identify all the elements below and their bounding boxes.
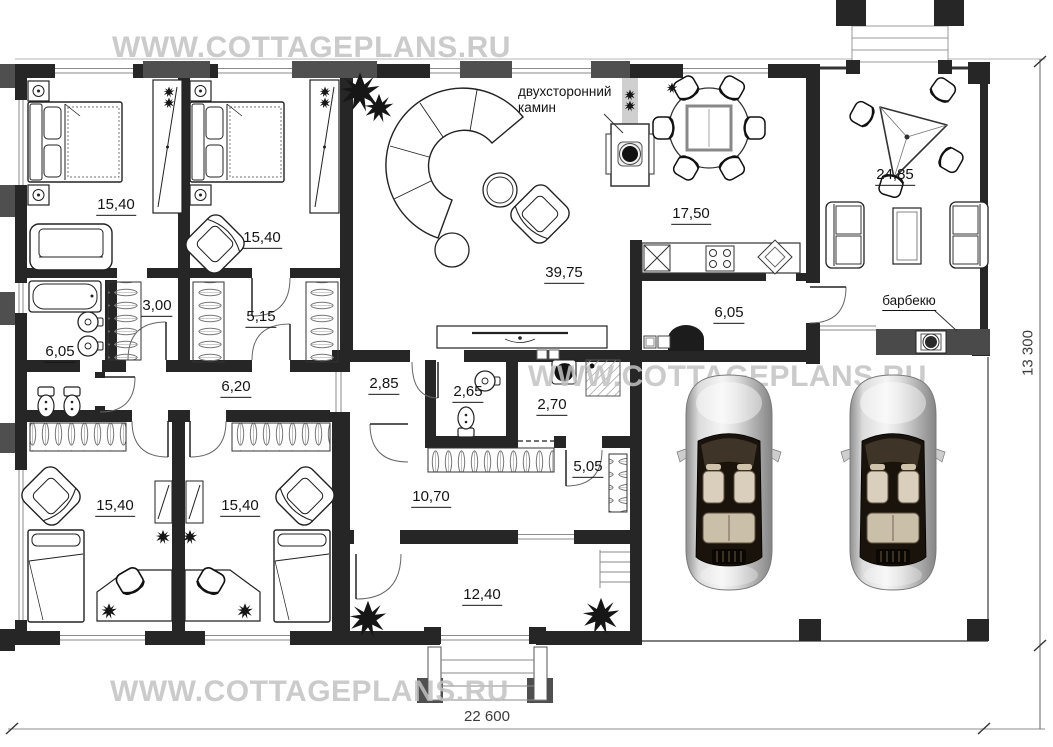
- floorplan-drawing: WWW.COTTAGEPLANS.RU WWW.COTTAGEPLANS.RU …: [0, 0, 1053, 747]
- barbecue: [876, 329, 990, 355]
- dining-set: [653, 74, 765, 182]
- terrace-furniture: [826, 75, 988, 268]
- tv-console: [437, 326, 607, 348]
- wc-fixtures: [458, 371, 500, 437]
- bedroom2-furniture: [182, 80, 339, 277]
- car-2: [841, 375, 945, 590]
- car-1: [677, 375, 781, 590]
- kitchen-counter: [642, 240, 800, 274]
- mudroom-fixtures: [644, 325, 704, 351]
- bathtub: [29, 281, 101, 312]
- terrace-sofa-left: [826, 202, 864, 268]
- pergola: [820, 0, 990, 84]
- coffee-table: [893, 208, 921, 264]
- sofa: [30, 224, 112, 270]
- kids2-furniture: [185, 423, 338, 622]
- watermark-top: WWW.COTTAGEPLANS.RU: [112, 31, 511, 64]
- carport-posts: [799, 619, 989, 641]
- living-furniture: [386, 88, 607, 348]
- terrace-sofa-right: [950, 202, 988, 268]
- watermark-bottom: WWW.COTTAGEPLANS.RU: [110, 675, 509, 708]
- corridor-wardrobes: [428, 448, 627, 512]
- closet-storage: [108, 282, 338, 362]
- bedroom1-furniture: [28, 80, 182, 270]
- bathroom-fixtures: [29, 281, 103, 417]
- side-steps: [600, 550, 630, 588]
- floorplan-page: WWW.COTTAGEPLANS.RU WWW.COTTAGEPLANS.RU …: [0, 0, 1053, 747]
